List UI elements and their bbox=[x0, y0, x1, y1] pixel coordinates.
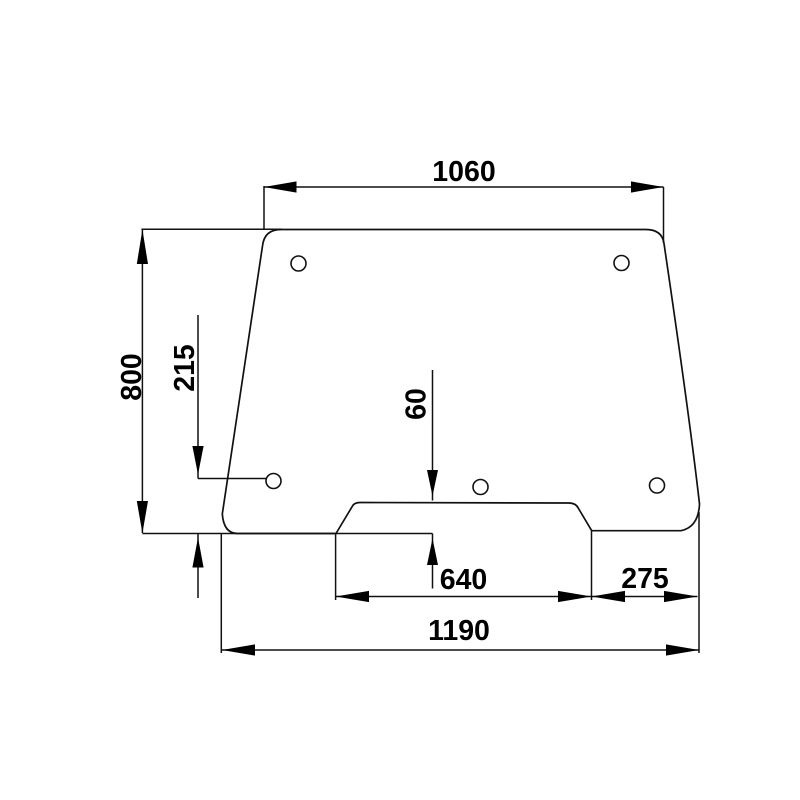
svg-text:1190: 1190 bbox=[428, 615, 490, 647]
svg-text:275: 275 bbox=[621, 563, 669, 595]
svg-text:800: 800 bbox=[116, 353, 148, 401]
svg-text:1060: 1060 bbox=[432, 156, 495, 188]
svg-text:60: 60 bbox=[401, 388, 433, 420]
svg-text:215: 215 bbox=[169, 344, 201, 392]
svg-text:640: 640 bbox=[440, 564, 488, 596]
